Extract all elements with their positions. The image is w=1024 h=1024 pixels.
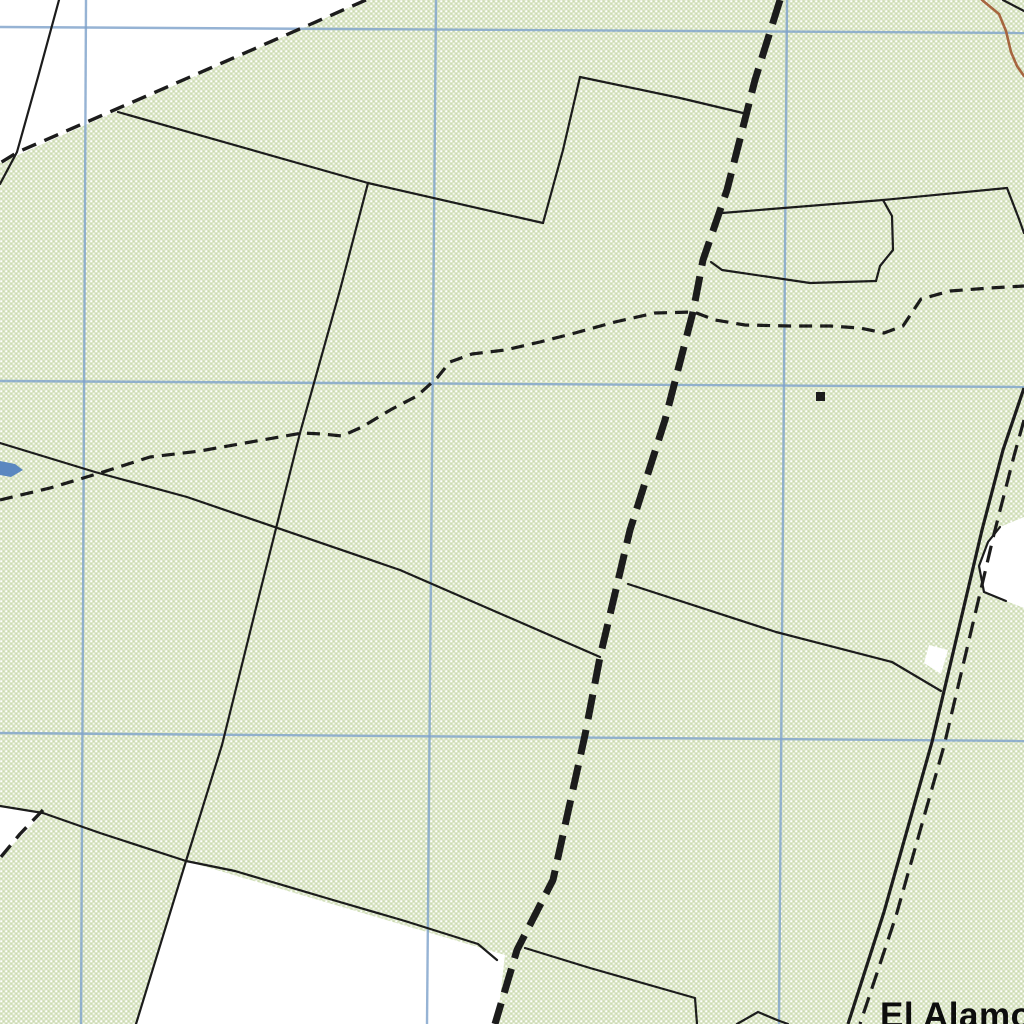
building-square	[816, 392, 825, 401]
topo-map: El Alamo	[0, 0, 1024, 1024]
place-label: El Alamo	[880, 996, 1024, 1024]
vegetation-area	[0, 0, 1024, 1024]
map-viewport: El Alamo	[0, 0, 1024, 1024]
